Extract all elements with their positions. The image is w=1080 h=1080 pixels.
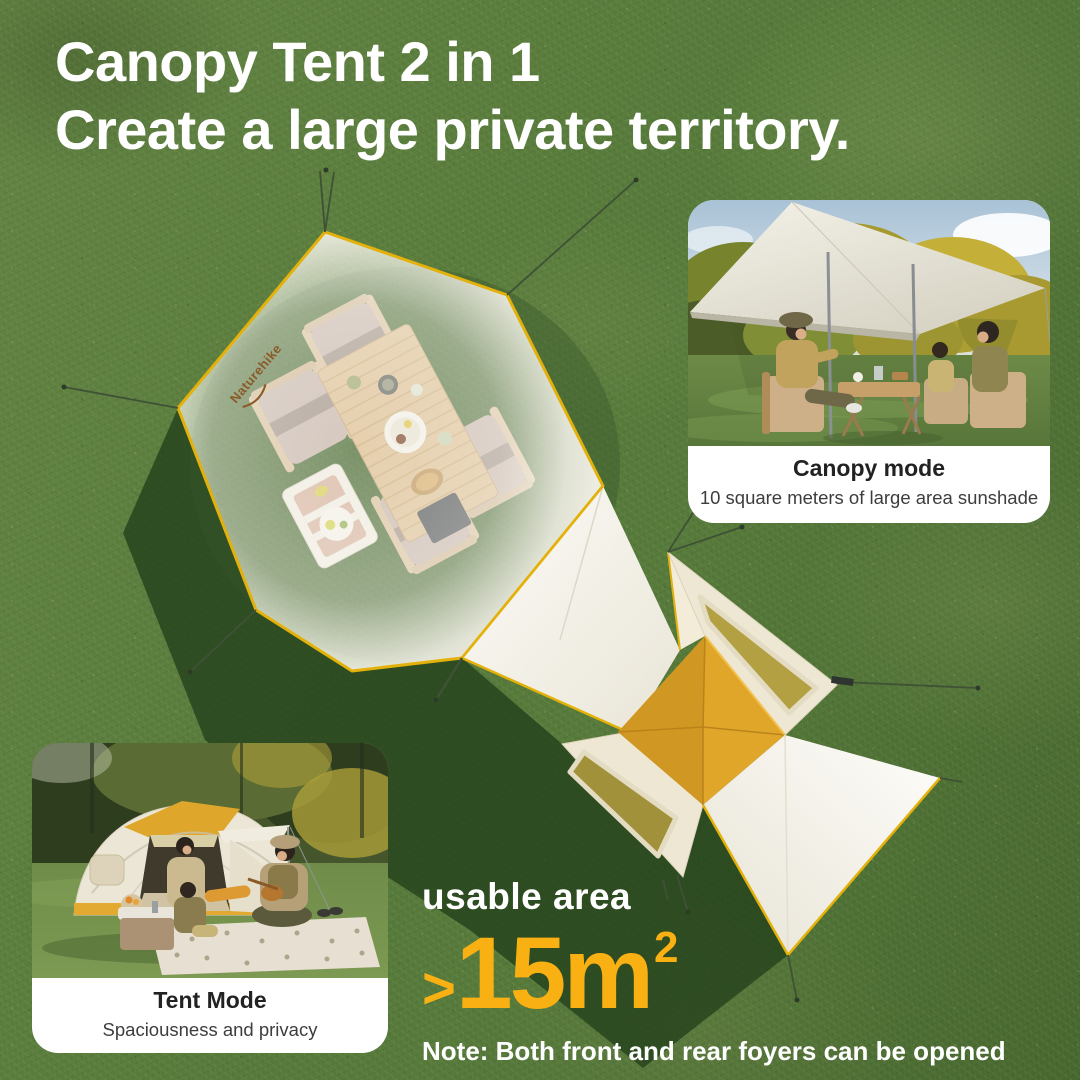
- canopy-mode-photo: [688, 200, 1050, 446]
- headline: Canopy Tent 2 in 1 Create a large privat…: [55, 28, 850, 164]
- canopy-mode-title: Canopy mode: [688, 455, 1050, 482]
- headline-line-2: Create a large private territory.: [55, 96, 850, 164]
- tent-mode-title: Tent Mode: [32, 987, 388, 1014]
- canopy-mode-card: Canopy mode 10 square meters of large ar…: [688, 200, 1050, 523]
- usable-area-callout: usable area >15m2 Note: Both front and r…: [422, 876, 1006, 1067]
- usable-area-number: 15m: [456, 916, 651, 1030]
- usable-area-label: usable area: [422, 876, 1006, 918]
- tent-mode-photo: [32, 743, 388, 978]
- canopy-mode-subtitle: 10 square meters of large area sunshade: [688, 487, 1050, 509]
- tent-mode-caption: Tent Mode Spaciousness and privacy: [32, 987, 388, 1041]
- usable-area-note: Note: Both front and rear foyers can be …: [422, 1036, 1006, 1067]
- poster: Naturehike: [0, 0, 1080, 1080]
- tent-mode-subtitle: Spaciousness and privacy: [32, 1019, 388, 1041]
- usable-area-superscript: 2: [654, 926, 678, 970]
- greater-than-sign: >: [422, 956, 456, 1021]
- usable-area-value: >15m2: [422, 922, 1006, 1024]
- canopy-mode-caption: Canopy mode 10 square meters of large ar…: [688, 455, 1050, 509]
- tent-mode-card: Tent Mode Spaciousness and privacy: [32, 743, 388, 1053]
- headline-line-1: Canopy Tent 2 in 1: [55, 28, 850, 96]
